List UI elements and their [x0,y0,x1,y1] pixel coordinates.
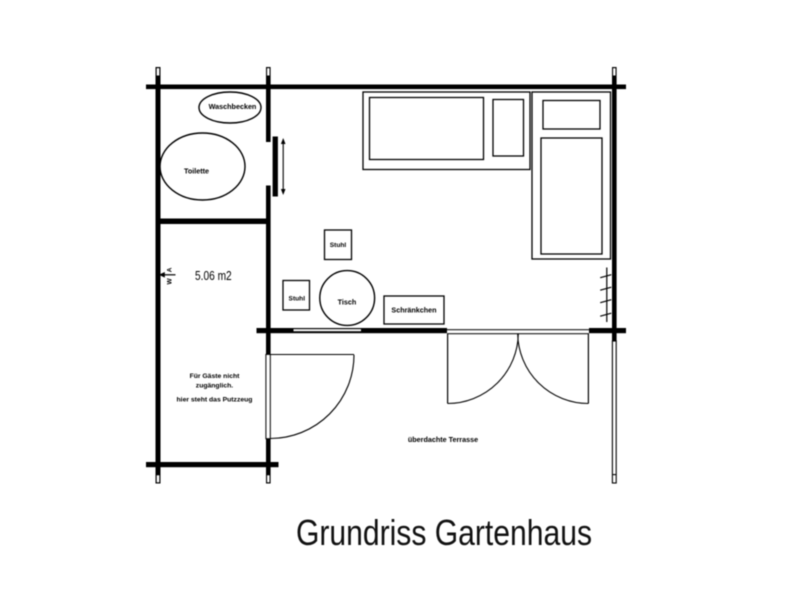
svg-text:Schränkchen: Schränkchen [391,306,436,315]
svg-text:Tisch: Tisch [338,298,357,307]
svg-text:Toilette: Toilette [184,166,209,175]
svg-text:zugänglich.: zugänglich. [196,382,233,389]
svg-text:Stuhl: Stuhl [289,296,306,303]
svg-text:W: W [167,278,174,285]
svg-text:Stuhl: Stuhl [330,242,347,249]
svg-text:5.06 m2: 5.06 m2 [195,269,232,284]
svg-text:Waschbecken: Waschbecken [209,102,257,111]
svg-text:hier steht das Putzzeug: hier steht das Putzzeug [177,396,253,403]
svg-text:Für Gäste nicht: Für Gäste nicht [190,373,241,380]
svg-text:überdachte Terrasse: überdachte Terrasse [408,435,478,444]
svg-text:Grundriss Gartenhaus: Grundriss Gartenhaus [296,513,592,553]
svg-text:A: A [167,267,174,272]
